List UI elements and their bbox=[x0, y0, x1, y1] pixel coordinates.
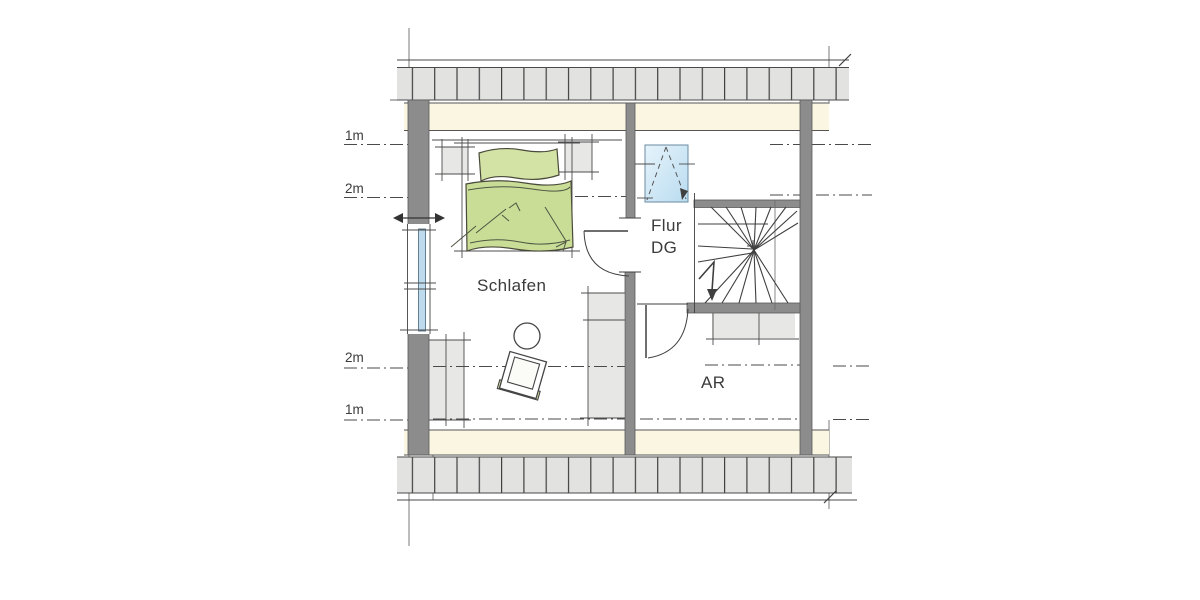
room-label-bedroom: Schlafen bbox=[477, 276, 546, 296]
roof-hatch-band-bottom bbox=[397, 457, 857, 500]
floorplan-page: Schlafen Flur DG AR 1m 2m 2m 1m bbox=[0, 0, 1200, 600]
door-storage bbox=[637, 304, 688, 358]
wall-hall-upper bbox=[626, 103, 635, 218]
staircase bbox=[695, 193, 799, 313]
height-mark-top-1m: 1m bbox=[345, 128, 364, 143]
nightstand-right bbox=[565, 142, 592, 172]
door-bedroom bbox=[584, 218, 641, 276]
wall-stair-top bbox=[694, 200, 800, 208]
window-left bbox=[393, 213, 445, 334]
dresser bbox=[429, 340, 464, 420]
stair-direction-arrow bbox=[699, 262, 717, 301]
knee-wall-band-top bbox=[404, 103, 829, 131]
room-label-storage: AR bbox=[701, 373, 725, 393]
height-mark-bottom-1m: 1m bbox=[345, 402, 364, 417]
height-mark-top-2m: 2m bbox=[345, 181, 364, 196]
room-label-hall-line2: DG bbox=[651, 238, 677, 258]
wall-hall-lower bbox=[625, 272, 635, 455]
wall-stair-bottom bbox=[687, 303, 800, 313]
roof-hatch-band-top bbox=[397, 60, 849, 100]
knee-wall-band-bottom bbox=[404, 430, 829, 455]
stool bbox=[514, 323, 540, 349]
chair bbox=[497, 351, 548, 400]
bed-pillow bbox=[479, 149, 559, 181]
room-label-hall-line1: Flur bbox=[651, 216, 682, 236]
height-mark-bottom-2m: 2m bbox=[345, 350, 364, 365]
window-glazing bbox=[419, 229, 426, 331]
floorplan-drawing bbox=[0, 0, 1200, 600]
skylight bbox=[635, 145, 695, 202]
bed bbox=[451, 137, 580, 258]
under-stair-storage bbox=[712, 313, 795, 338]
nightstand-left bbox=[442, 147, 468, 174]
wall-right bbox=[800, 100, 812, 455]
wardrobe bbox=[588, 293, 624, 418]
